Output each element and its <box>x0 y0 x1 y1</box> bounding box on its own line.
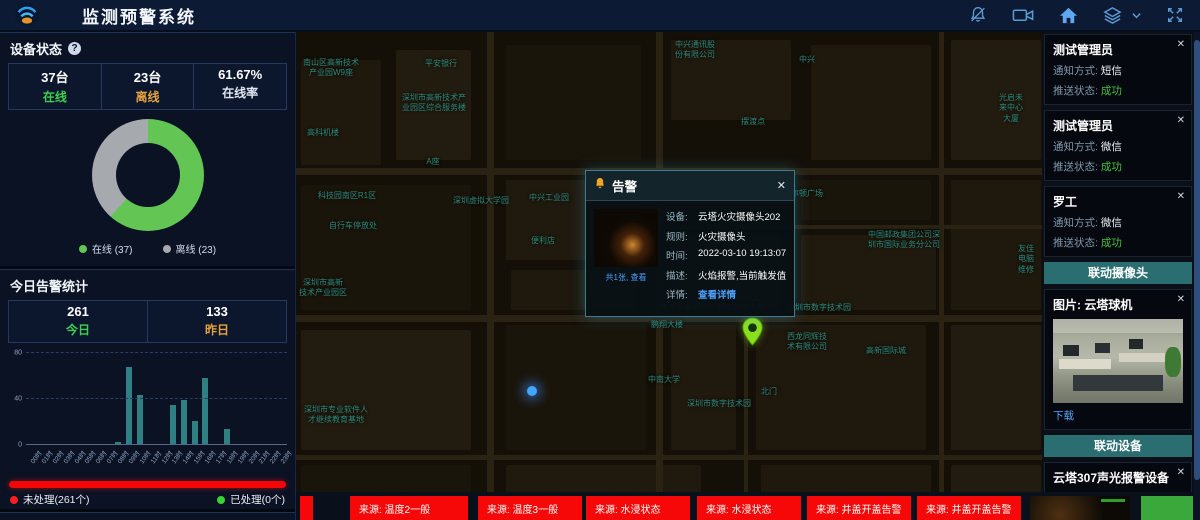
notification-recipient: 罗工 <box>1053 193 1183 210</box>
bar-slot <box>37 353 48 444</box>
bar-slot <box>113 353 124 444</box>
bar-slot <box>91 353 102 444</box>
stat-label: 在线率 <box>194 84 286 101</box>
bar-slot <box>80 353 91 444</box>
field-value: 成功 <box>1101 85 1122 97</box>
map-label: 鹏翔大楼 <box>651 320 683 330</box>
legend-item: 离线 (23) <box>163 241 217 256</box>
stat-cell: 61.67%在线率 <box>194 64 286 109</box>
popup-field: 规则:火灾摄像头 <box>666 229 786 243</box>
map-label: 中兴通讯股 份有限公司 <box>675 40 715 61</box>
popup-field-value: 2022-03-10 19:13:07 <box>698 248 786 262</box>
close-icon[interactable]: ✕ <box>1177 39 1185 50</box>
bar-slot <box>26 353 37 444</box>
alarm-location-pin[interactable] <box>741 317 764 351</box>
bar-slot <box>70 353 81 444</box>
legend-label: 离线 (23) <box>176 241 217 256</box>
download-link[interactable]: 下载 <box>1053 408 1183 423</box>
home-icon[interactable] <box>1059 6 1078 25</box>
bar-slot <box>135 353 146 444</box>
handled-dot-icon <box>217 496 225 504</box>
bar <box>126 367 132 444</box>
bar-slot <box>222 353 233 444</box>
snapshot-caption-link[interactable]: 共1张, 查看 <box>594 272 658 283</box>
alarm-popup: 告警 ✕ 共1张, 查看 设备:云塔火灾摄像头202规则:火灾摄像头时间:202… <box>585 170 795 317</box>
y-axis-tick: 40 <box>14 396 22 403</box>
map-label: 中南大学 <box>648 375 680 385</box>
map-label: 友佳电脑维修 <box>1018 244 1034 275</box>
close-icon[interactable]: ✕ <box>1177 191 1185 202</box>
y-axis-tick: 0 <box>18 442 22 449</box>
unhandled-progress-bar <box>9 481 286 488</box>
device-status-donut-chart <box>92 119 204 231</box>
map-label: 高科机楼 <box>307 128 339 138</box>
photo-decor <box>1165 347 1181 377</box>
fullscreen-icon[interactable] <box>1166 6 1184 24</box>
photo-decor <box>1073 375 1163 391</box>
field-label: 通知方式: <box>1053 217 1101 229</box>
map-building <box>671 325 736 450</box>
map-label: 科技园南区R1区 <box>318 191 376 201</box>
bar <box>170 405 176 444</box>
card-field: 推送状态: 成功 <box>1053 159 1183 174</box>
stat-cell: 37台在线 <box>9 64 102 109</box>
gridline <box>26 398 287 399</box>
notification-list: 测试管理员✕通知方式: 短信推送状态: 成功测试管理员✕通知方式: 微信推送状态… <box>1042 34 1194 257</box>
alarm-popup-title: 告警 <box>612 176 637 195</box>
alarm-popup-fields: 设备:云塔火灾摄像头202规则:火灾摄像头时间:2022-03-10 19:13… <box>666 209 786 307</box>
bar-slot <box>102 353 113 444</box>
bar-slot <box>124 353 135 444</box>
alarm-bell-icon <box>594 177 606 195</box>
photo-decor <box>1119 353 1165 362</box>
card-field: 通知方式: 短信 <box>1053 63 1183 78</box>
right-panel: 测试管理员✕通知方式: 短信推送状态: 成功测试管理员✕通知方式: 微信推送状态… <box>1042 32 1194 520</box>
notification-recipient: 测试管理员 <box>1053 117 1183 134</box>
bar-slot <box>157 353 168 444</box>
card-field: 推送状态: 成功 <box>1053 83 1183 98</box>
photo-decor <box>1059 359 1111 369</box>
app-logo-icon <box>14 2 40 28</box>
close-icon[interactable]: ✕ <box>1177 115 1185 126</box>
layers-icon[interactable] <box>1102 5 1123 26</box>
map-label: 中国邮政集团公司深 圳市国际业务分公司 <box>868 230 940 251</box>
field-label: 推送状态: <box>1053 85 1101 97</box>
popup-field: 时间:2022-03-10 19:13:07 <box>666 248 786 262</box>
map-label: 深圳市专业软件人 才继续教育基地 <box>304 405 368 426</box>
app-header: 监测预警系统 <box>0 0 1200 32</box>
popup-detail-link[interactable]: 查看详情 <box>698 287 736 301</box>
map-label: 深圳市数字技术园 <box>687 399 751 409</box>
alert-source-card[interactable]: 来源: 水浸状态 <box>697 496 801 520</box>
gridline <box>26 352 287 353</box>
popup-field: 设备:云塔火灾摄像头202 <box>666 209 786 223</box>
popup-field: 描述:火焰报警,当前触发值为... <box>666 268 786 282</box>
map-label: A座 <box>426 157 439 167</box>
popup-field-value: 火灾摄像头 <box>698 229 746 243</box>
video-camera-icon[interactable] <box>1012 6 1035 24</box>
stat-cell: 23台离线 <box>102 64 195 109</box>
month-alarms-header: 本月告警统计 <box>0 513 295 520</box>
device-status-header: 设备状态 ? <box>0 33 295 63</box>
bar-slot <box>276 353 287 444</box>
alert-source-card[interactable]: 来源: 井盖开盖告警 <box>807 496 911 520</box>
bar-slot <box>211 353 222 444</box>
alert-source-card[interactable]: 来源: 温度2一般 <box>350 496 468 520</box>
map-label: 便利店 <box>531 236 555 246</box>
alert-source-text: 来源: 水浸状态 <box>706 501 772 516</box>
notification-card: 测试管理员✕通知方式: 微信推送状态: 成功 <box>1044 110 1192 181</box>
stat-label: 今日 <box>9 321 147 338</box>
photo-decor <box>1095 343 1110 353</box>
close-icon[interactable]: ✕ <box>1177 294 1185 305</box>
alert-card-partial[interactable] <box>300 496 313 520</box>
map-label: 摆渡点 <box>741 117 765 127</box>
legend-dot-icon <box>79 245 87 253</box>
field-label: 通知方式: <box>1053 65 1101 77</box>
map-building <box>801 180 931 220</box>
alert-source-text: 来源: 温度3一般 <box>487 501 558 516</box>
bar-chart-y-axis: 04080 <box>10 353 24 445</box>
stat-cell: 133昨日 <box>148 301 286 342</box>
field-value: 微信 <box>1101 217 1122 229</box>
scrollbar-thumb[interactable] <box>1194 40 1200 480</box>
map-building <box>811 45 931 160</box>
map-label: 自行车停放处 <box>329 221 377 231</box>
stat-value: 261 <box>9 304 147 319</box>
alarm-snapshot-thumbnail[interactable] <box>1030 496 1130 520</box>
map-road <box>296 455 1042 460</box>
bar-slot <box>178 353 189 444</box>
legend-dot-icon <box>163 245 171 253</box>
camera-feed-tile-green[interactable] <box>1141 496 1193 520</box>
linked-devices-header[interactable]: 联动设备 <box>1044 435 1192 457</box>
alert-source-text: 来源: 井盖开盖告警 <box>816 501 902 516</box>
stat-label: 离线 <box>102 88 194 105</box>
close-icon[interactable]: ✕ <box>1177 467 1185 478</box>
popup-field-label: 规则: <box>666 229 698 243</box>
photo-decor <box>1129 339 1143 349</box>
donut-chart-wrap <box>0 110 295 234</box>
alert-source-card[interactable]: 来源: 温度3一般 <box>478 496 582 520</box>
handled-legend-item: 已处理(0个) <box>217 492 285 507</box>
map-canvas[interactable]: 南山区高新技术 产业园W9座平安银行深圳市高新技术产 业园区综合服务楼高科机楼A… <box>296 32 1042 520</box>
header-toolbar <box>968 5 1184 26</box>
alert-source-text: 来源: 温度2一般 <box>359 501 430 516</box>
stat-cell: 261今日 <box>9 301 148 342</box>
linked-cameras-header[interactable]: 联动摄像头 <box>1044 262 1192 284</box>
notification-recipient: 测试管理员 <box>1053 41 1183 58</box>
info-icon[interactable]: ? <box>68 42 81 55</box>
bar <box>181 400 187 444</box>
field-label: 推送状态: <box>1053 161 1101 173</box>
map-label: 光启未来中心大厦 <box>996 93 1027 124</box>
stat-label: 昨日 <box>148 321 286 338</box>
alarm-popup-titlebar: 告警 ✕ <box>586 171 794 201</box>
close-icon[interactable]: ✕ <box>777 179 786 192</box>
map-label: 南山区高新技术 产业园W9座 <box>303 58 359 79</box>
bar-slot <box>254 353 265 444</box>
map-label: 中兴工业园 <box>529 193 569 203</box>
month-alarms-section: 本月告警统计 7631146 <box>0 512 295 520</box>
stat-value: 23台 <box>102 67 194 86</box>
device-status-title: 设备状态 <box>10 39 62 58</box>
field-value: 成功 <box>1101 237 1122 249</box>
card-field: 推送状态: 成功 <box>1053 235 1183 250</box>
popup-field-label: 时间: <box>666 248 698 262</box>
card-field: 通知方式: 微信 <box>1053 215 1183 230</box>
field-label: 推送状态: <box>1053 237 1101 249</box>
today-alarms-section: 今日告警统计 261今日133昨日 04080 00时01时02时03时04时0… <box>0 269 295 507</box>
map-building <box>756 325 926 450</box>
field-value: 短信 <box>1101 65 1122 77</box>
camera-card-title: 图片: 云塔球机 <box>1053 296 1183 313</box>
bar-slot <box>233 353 244 444</box>
map-label: 深圳市高新 技术产业园区 <box>299 278 347 299</box>
legend-label: 在线 (37) <box>92 241 133 256</box>
bar <box>137 395 143 444</box>
donut-legend: 在线 (37)离线 (23) <box>0 234 295 264</box>
map-building <box>506 45 641 160</box>
field-value: 成功 <box>1101 161 1122 173</box>
map-label: 高新国际城 <box>866 346 906 356</box>
device-status-stats: 37台在线23台离线61.67%在线率 <box>8 63 287 110</box>
thumbnail-timestamp-decor <box>1101 499 1125 502</box>
bar-slot <box>244 353 255 444</box>
bar-chart-x-axis: 00时01时02时03时04时05时06时07时08时09时10时11时12时1… <box>26 449 287 477</box>
map-building <box>301 330 471 450</box>
bar-slot <box>146 353 157 444</box>
card-field: 通知方式: 微信 <box>1053 139 1183 154</box>
map-label: 北门 <box>761 387 777 397</box>
popup-field: 详情:查看详情 <box>666 287 786 301</box>
bar-slot <box>189 353 200 444</box>
notification-card: 测试管理员✕通知方式: 短信推送状态: 成功 <box>1044 34 1192 105</box>
photo-decor <box>1053 319 1183 333</box>
map-label: 深圳市高新技术产 业园区综合服务楼 <box>402 93 466 114</box>
bar-slot <box>167 353 178 444</box>
stat-value: 61.67% <box>194 67 286 82</box>
stat-value: 37台 <box>9 67 101 86</box>
field-label: 通知方式: <box>1053 141 1101 153</box>
scrollbar <box>1194 32 1200 520</box>
popup-field-value: 云塔火灾摄像头202 <box>698 209 780 223</box>
bar-slot <box>59 353 70 444</box>
page-title: 监测预警系统 <box>82 3 196 28</box>
alert-source-text: 来源: 水浸状态 <box>595 501 661 516</box>
y-axis-tick: 80 <box>14 350 22 357</box>
today-alarms-title: 今日告警统计 <box>10 276 88 295</box>
bar <box>115 442 121 444</box>
camera-snapshot-image[interactable] <box>1053 319 1183 403</box>
map-label: 平安银行 <box>425 59 457 69</box>
bar <box>224 429 230 444</box>
handled-legend: 未处理(261个) 已处理(0个) <box>10 492 285 507</box>
handled-label: 已处理(0个) <box>230 492 285 507</box>
device-status-section: 设备状态 ? 37台在线23台离线61.67%在线率 在线 (37)离线 (23… <box>0 32 295 264</box>
map-label: 深圳市数字技术园 <box>787 303 851 313</box>
bar <box>202 378 208 444</box>
unhandled-legend-item: 未处理(261个) <box>10 492 90 507</box>
popup-field-label: 详情: <box>666 287 698 301</box>
popup-field-label: 设备: <box>666 209 698 223</box>
unhandled-dot-icon <box>10 496 18 504</box>
today-alarms-stats: 261今日133昨日 <box>8 300 287 343</box>
bar-chart-plot <box>26 353 287 445</box>
stat-label: 在线 <box>9 88 101 105</box>
photo-decor <box>1063 345 1079 356</box>
device-location-marker[interactable] <box>527 386 537 396</box>
device-name: 云塔307声光报警设备 <box>1053 469 1183 486</box>
alarm-snapshot-image[interactable] <box>594 209 658 267</box>
alert-source-card[interactable]: 来源: 井盖开盖告警 <box>917 496 1021 520</box>
camera-snapshot-card: 图片: 云塔球机 ✕ 下载 <box>1044 289 1192 430</box>
left-panel: 设备状态 ? 37台在线23台离线61.67%在线率 在线 (37)离线 (23… <box>0 32 296 520</box>
stat-value: 133 <box>148 304 286 319</box>
alarm-snapshot-column: 共1张, 查看 <box>594 209 658 307</box>
chevron-down-icon[interactable] <box>1131 10 1142 21</box>
bottom-alert-strip: 来源: 温度2一般来源: 温度3一般来源: 水浸状态来源: 水浸状态来源: 井盖… <box>296 492 1200 520</box>
legend-item: 在线 (37) <box>79 241 133 256</box>
popup-field-value: 火焰报警,当前触发值为... <box>698 268 786 282</box>
alarm-popup-body: 共1张, 查看 设备:云塔火灾摄像头202规则:火灾摄像头时间:2022-03-… <box>586 201 794 316</box>
bar-slot <box>48 353 59 444</box>
popup-field-label: 描述: <box>666 268 698 282</box>
bell-muted-icon[interactable] <box>968 5 988 25</box>
alert-source-text: 来源: 井盖开盖告警 <box>926 501 1012 516</box>
map-label: 西龙同辉技 术有限公司 <box>787 332 827 353</box>
map-road <box>939 32 944 520</box>
map-road <box>487 32 494 520</box>
bar-slot <box>200 353 211 444</box>
today-alarms-bar-chart: 04080 00时01时02时03时04时05时06时07时08时09时10时1… <box>10 347 289 479</box>
bar-slot <box>265 353 276 444</box>
field-value: 微信 <box>1101 141 1122 153</box>
unhandled-label: 未处理(261个) <box>23 492 90 507</box>
map-building <box>951 325 1041 450</box>
alert-source-card[interactable]: 来源: 水浸状态 <box>586 496 690 520</box>
bar <box>192 421 198 444</box>
map-label: 深圳虚拟大学园 <box>453 196 509 206</box>
notification-card: 罗工✕通知方式: 微信推送状态: 成功 <box>1044 186 1192 257</box>
map-label: 中兴 <box>799 55 815 65</box>
today-alarms-header: 今日告警统计 <box>0 270 295 300</box>
